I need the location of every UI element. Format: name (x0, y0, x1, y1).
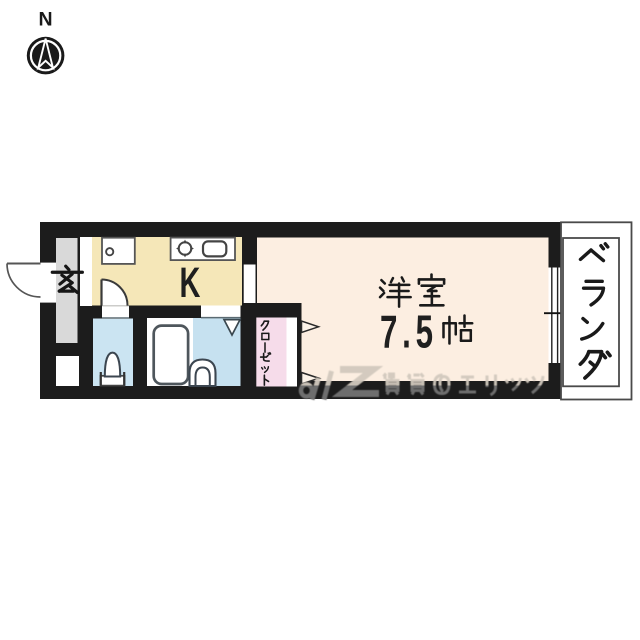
svg-text:K: K (180, 259, 201, 307)
svg-text:7.5: 7.5 (380, 307, 438, 358)
svg-text:N: N (38, 9, 52, 31)
